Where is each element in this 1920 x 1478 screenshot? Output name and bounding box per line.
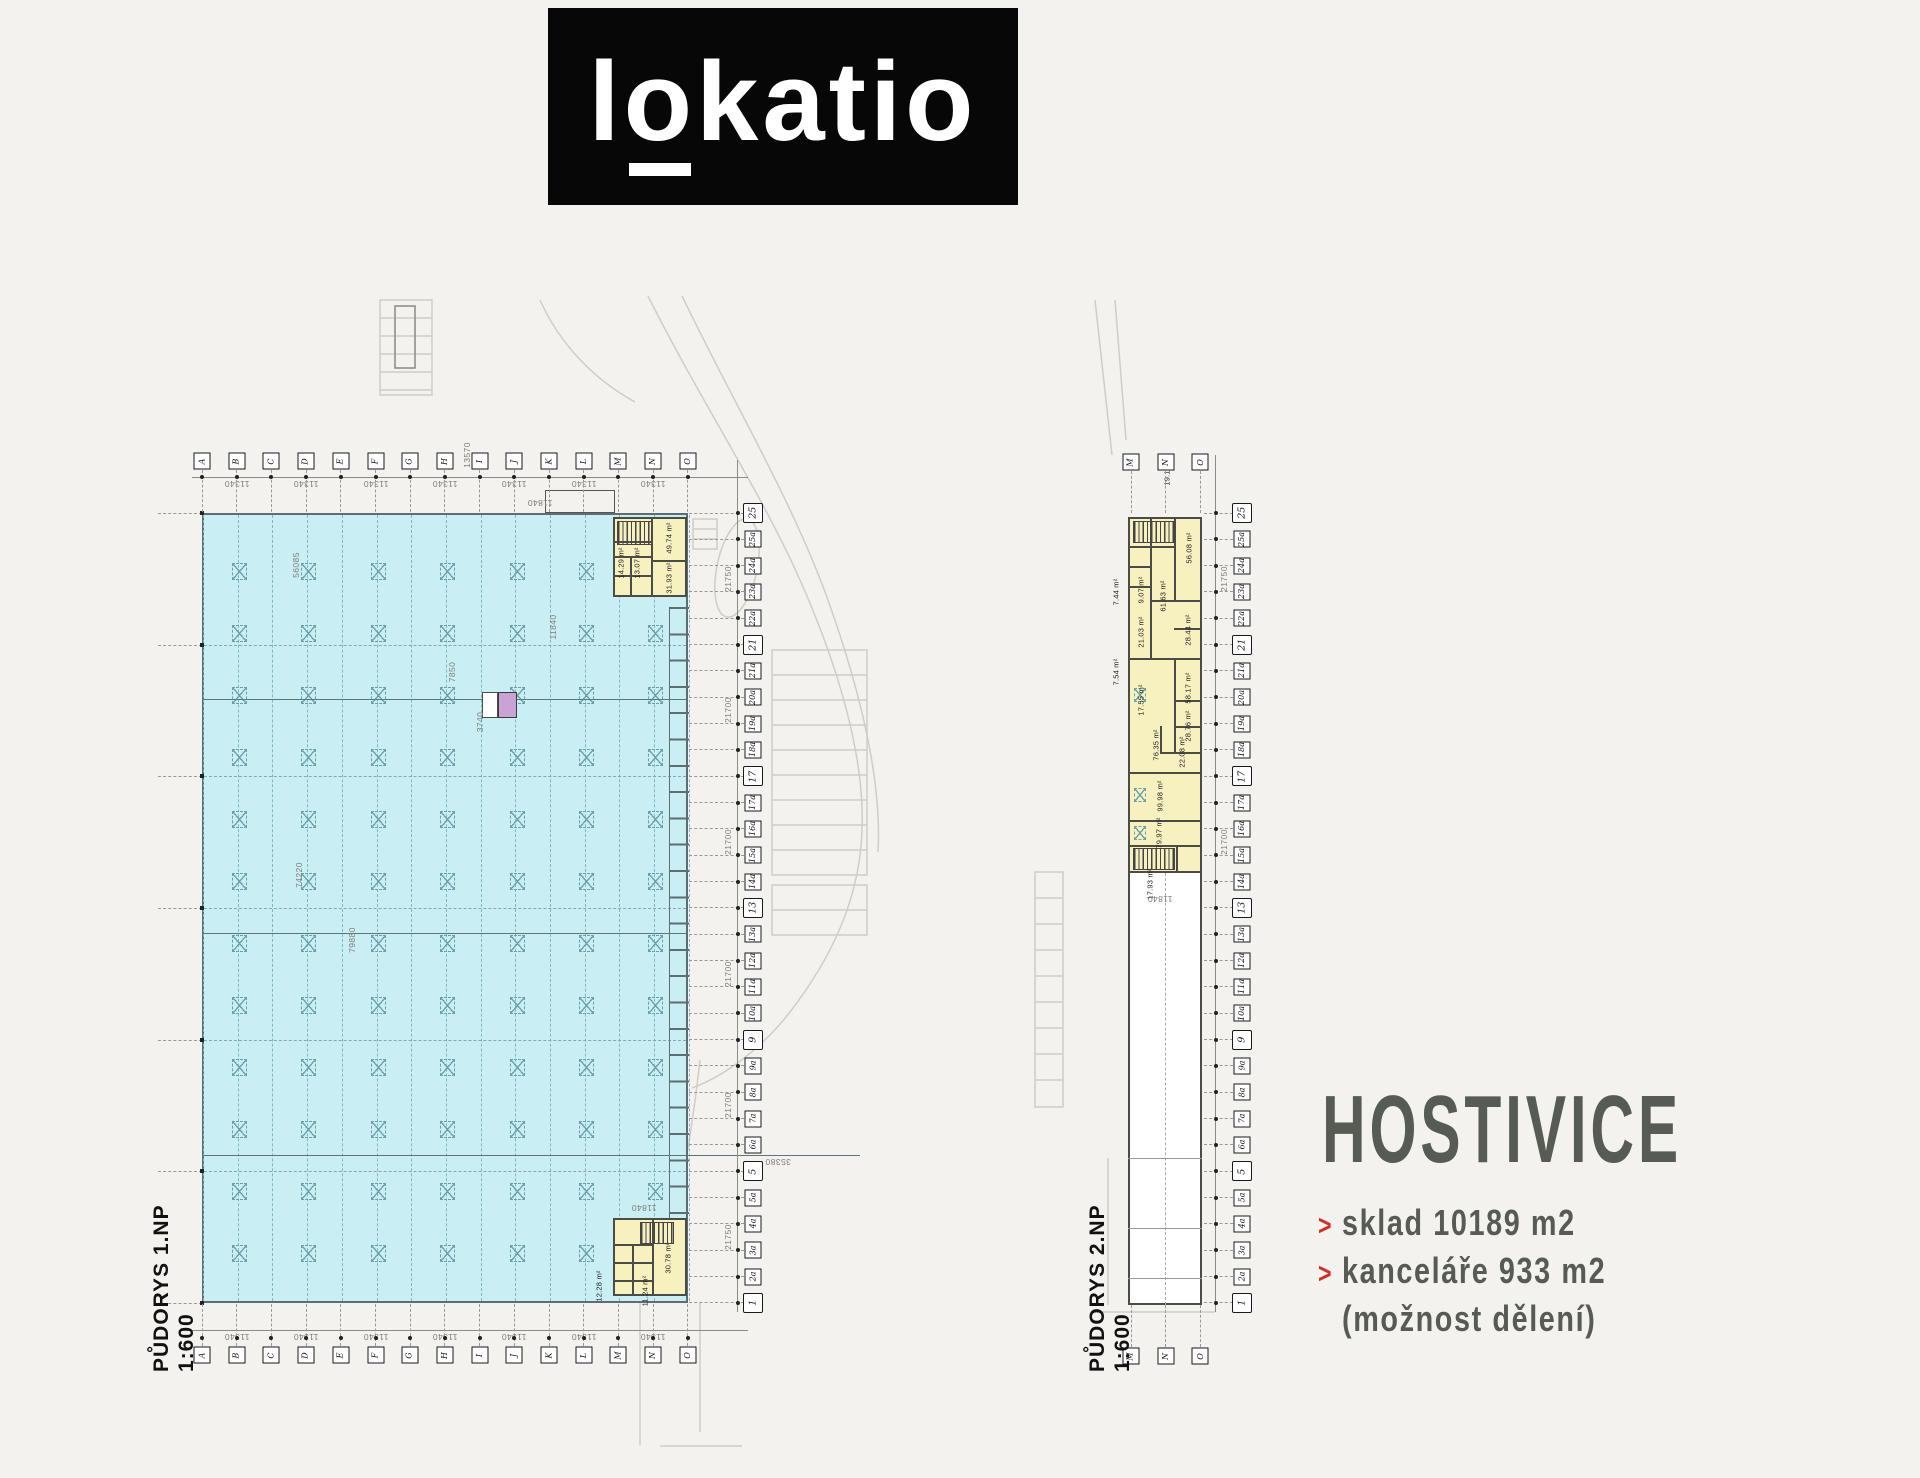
logo-letter-o-glyph: o — [624, 39, 696, 164]
wall — [1128, 1228, 1202, 1229]
wall — [630, 556, 632, 597]
wall — [1128, 566, 1150, 568]
plan1-ramp-outline — [545, 490, 615, 513]
bullet-text: kanceláře 933 m2 — [1342, 1250, 1606, 1292]
plan2-scale: 1:600 — [1111, 1204, 1136, 1372]
plan1-division-wall — [202, 933, 688, 934]
wall — [1176, 845, 1178, 873]
chevron-icon: > — [1318, 1258, 1342, 1291]
plan1-right-axis-line — [737, 460, 738, 1312]
plan1-top-axis-line — [192, 477, 748, 478]
wall — [632, 1244, 634, 1296]
project-title: HOSTIVICE — [1322, 1082, 1682, 1178]
stairs — [1133, 848, 1175, 870]
logo-wordmark: lokatio — [589, 46, 978, 158]
stairs — [1133, 521, 1175, 543]
plan2-title-text: PŮDORYS 2.NP — [1086, 1204, 1111, 1372]
wall — [1128, 1158, 1202, 1159]
stairs — [640, 1222, 674, 1244]
wall — [1128, 820, 1202, 822]
logo-letters-katio: katio — [696, 39, 977, 164]
bullet-text: (možnost dělení) — [1342, 1298, 1596, 1340]
plan2-centerline — [1165, 873, 1166, 1305]
plan1-division-wall — [202, 699, 688, 700]
plan1-title: PŮDORYS 1.NP 1:600 — [150, 1204, 200, 1372]
plan1-scale: 1:600 — [175, 1204, 200, 1372]
wall — [1128, 1278, 1202, 1279]
wall — [651, 560, 687, 562]
plan1-bottom-axis-line — [192, 1330, 748, 1331]
bullet-row: > kanceláře 933 m2 — [1318, 1250, 1606, 1298]
chevron-icon: > — [1318, 1210, 1342, 1243]
wall — [1128, 772, 1202, 774]
plan1-warehouse-area — [202, 513, 688, 1303]
brochure-page: 49.74 m² 14.29 m² 13.07 m² 31.93 m² 30.7… — [0, 0, 1920, 1478]
bullet-text: sklad 10189 m2 — [1342, 1202, 1576, 1244]
plan2-title: PŮDORYS 2.NP 1:600 — [1086, 1204, 1136, 1372]
bullet-row: > sklad 10189 m2 — [1318, 1202, 1606, 1250]
wall — [1128, 658, 1202, 660]
bullet-row: (možnost dělení) — [1318, 1298, 1606, 1346]
logo-letter-o: o — [624, 46, 696, 158]
wall — [1174, 658, 1176, 752]
column-marker — [1134, 788, 1146, 802]
plan1-division-wall — [202, 1155, 860, 1156]
plan1-highlighted-room — [498, 692, 517, 718]
wall — [652, 1218, 654, 1296]
wall — [1128, 845, 1202, 847]
logo-underline — [629, 163, 691, 176]
wall — [613, 541, 651, 543]
logo-letter-l: l — [589, 39, 624, 164]
project-bullets: > sklad 10189 m2 > kanceláře 933 m2 (mož… — [1318, 1202, 1606, 1346]
column-marker — [1134, 826, 1146, 840]
plan1-title-text: PŮDORYS 1.NP — [150, 1204, 175, 1372]
wall — [651, 517, 653, 597]
lokatio-logo: lokatio — [548, 8, 1018, 205]
